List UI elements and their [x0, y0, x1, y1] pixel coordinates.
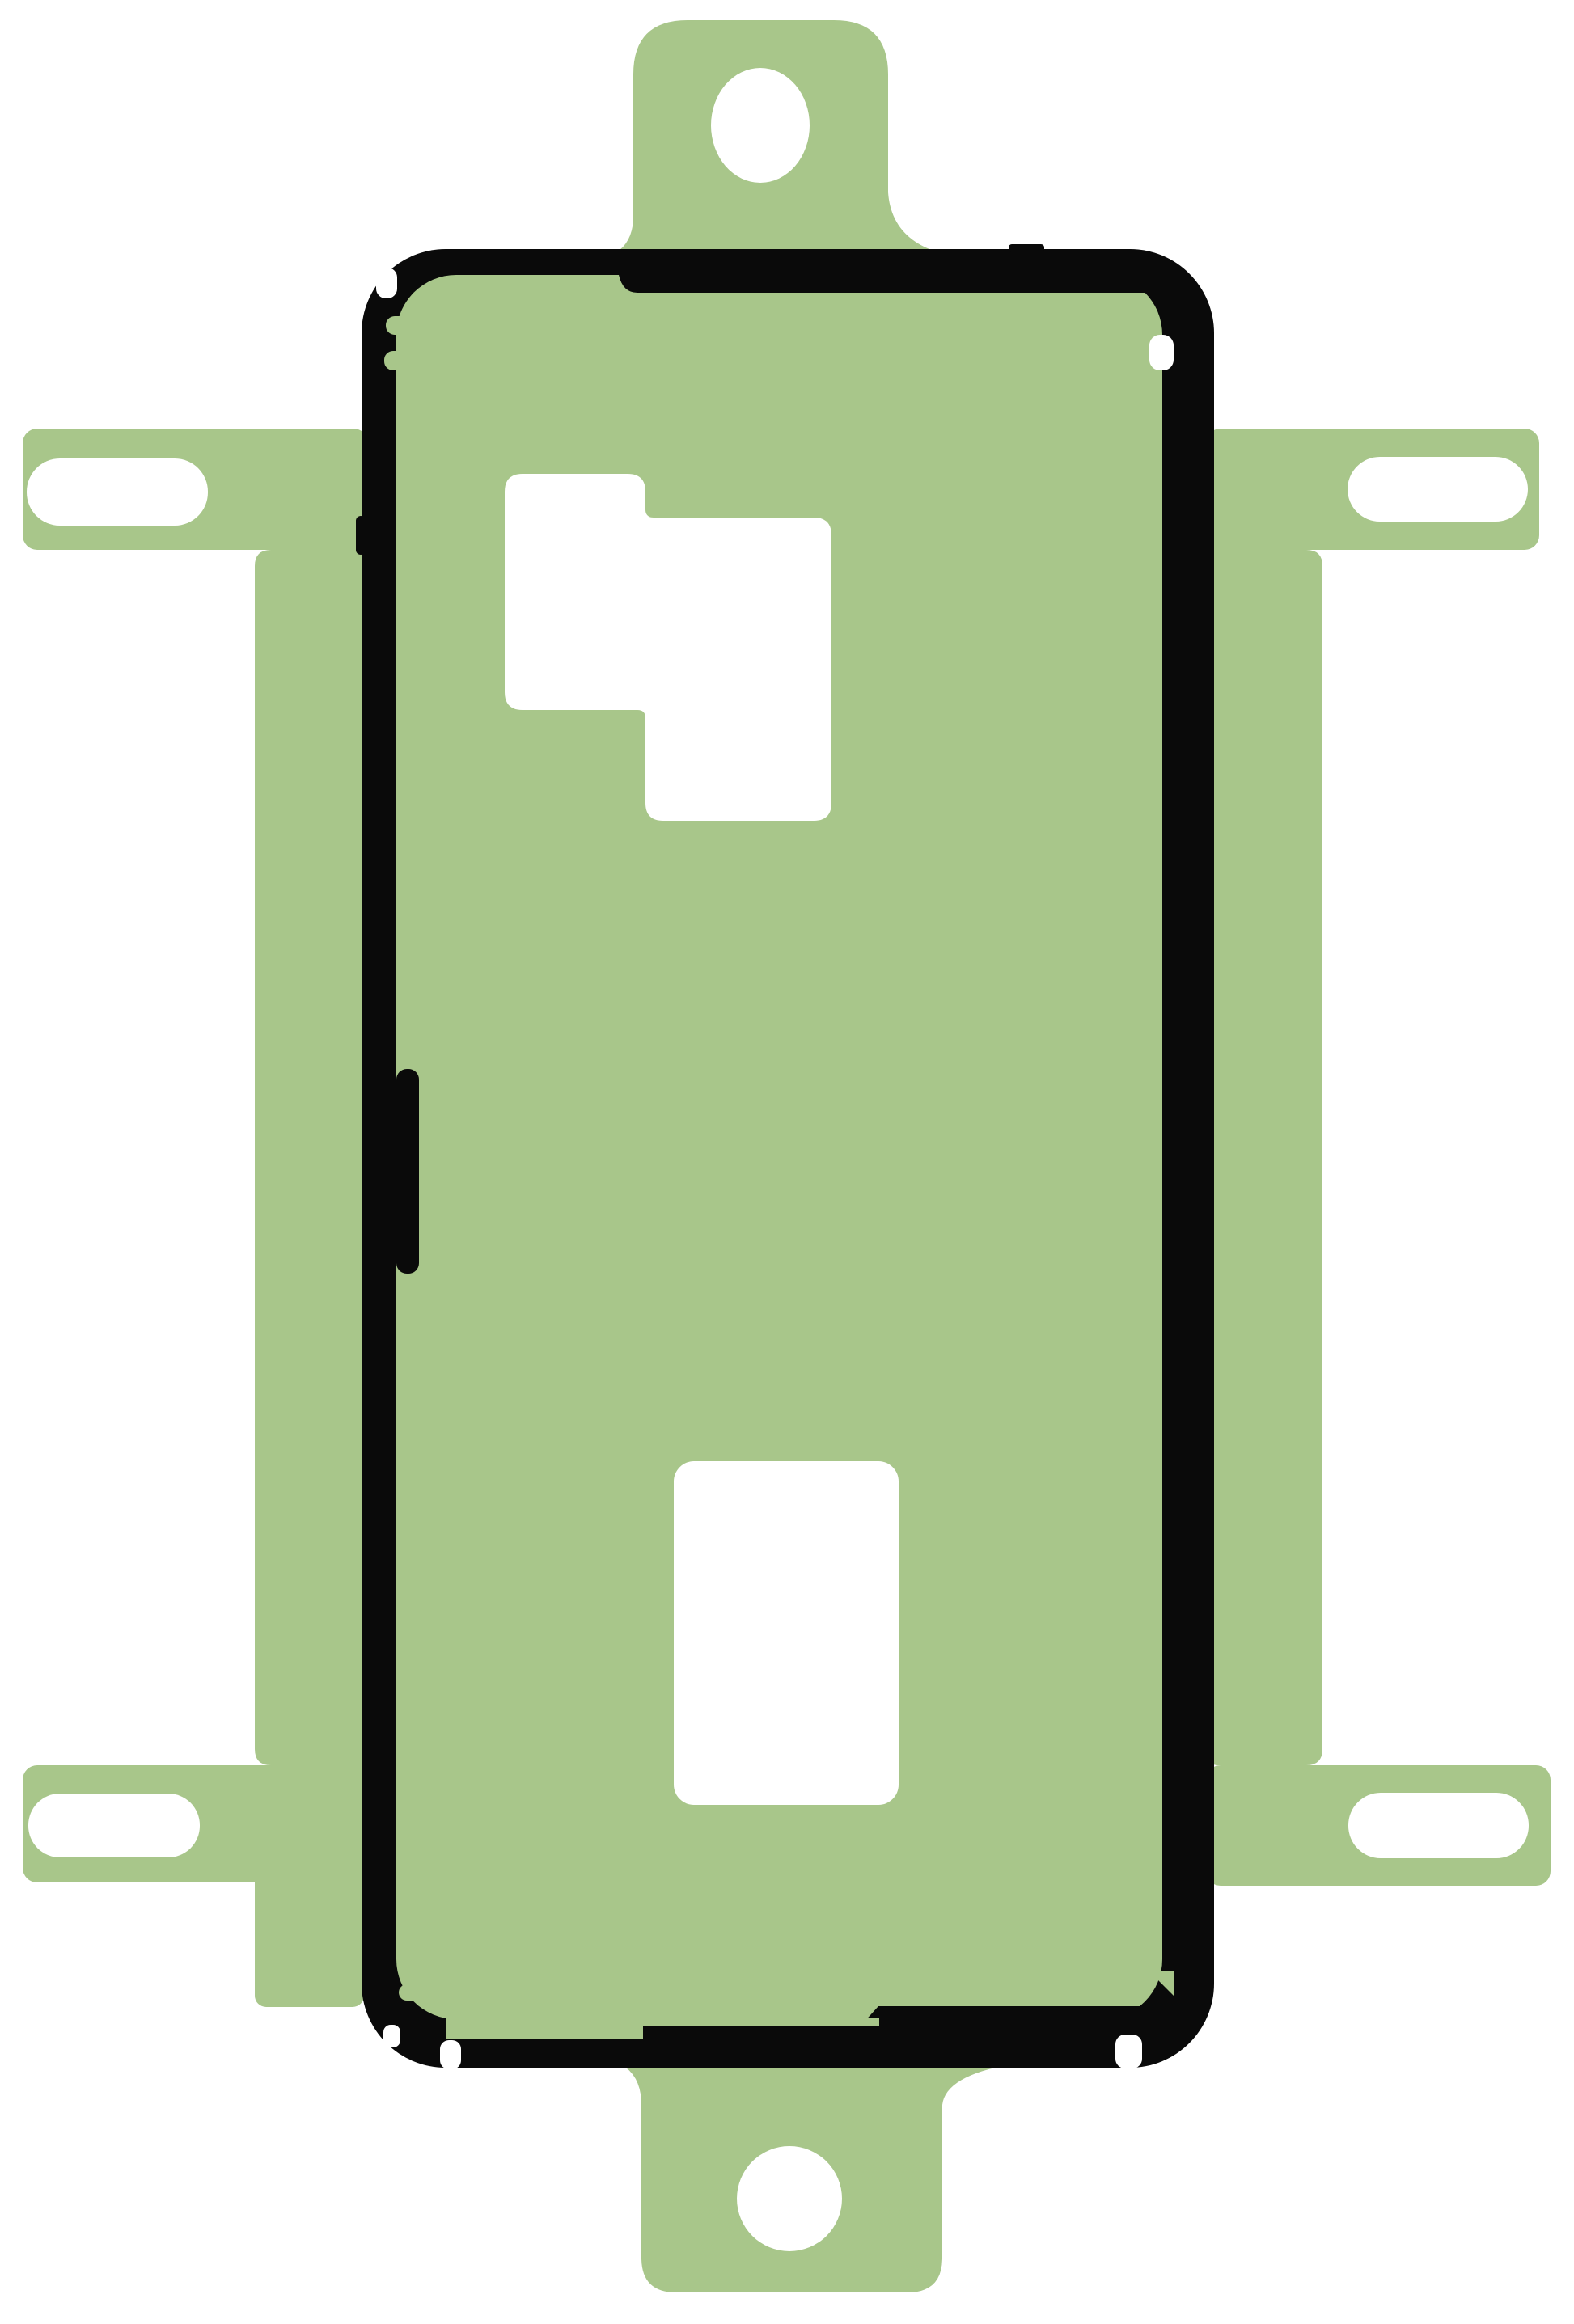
top-tab-hole: [711, 68, 810, 183]
outer-notch-top-left: [376, 268, 397, 298]
gasket-left-outer-bump: [356, 516, 366, 555]
slit-bottom-band-right: [1115, 2035, 1142, 2068]
bottom-tab-hole: [737, 2146, 842, 2251]
alignment-slot-bottom-right: [1348, 1793, 1529, 1858]
gasket-bottom-thick-segment: [862, 2006, 1162, 2024]
gasket-bottom-thin-cover-mid: [643, 2018, 879, 2026]
notch-top-left-2: [384, 351, 417, 370]
notch-top-left-1: [386, 316, 419, 335]
alignment-slot-top-left: [27, 458, 208, 526]
slit-bottom-band-left: [440, 2040, 461, 2069]
adhesive-sheet-image: [0, 0, 1574, 2324]
gasket-bottom-thin-cover-left: [446, 2018, 643, 2039]
alignment-slot-top-right: [1348, 457, 1528, 522]
outer-notch-bottom-left: [383, 2025, 400, 2047]
gasket-top-thick-segment: [619, 275, 1162, 293]
gasket-top-edge-tick: [1009, 244, 1044, 252]
right-vertical-strip: [1206, 485, 1322, 1765]
outer-notch-top-right: [1149, 335, 1174, 370]
gasket-left-inner-bump: [396, 1069, 419, 1274]
lower-rectangular-cutout: [674, 1461, 899, 1805]
product-image-stage: [0, 0, 1574, 2324]
left-vertical-strip: [255, 485, 364, 2007]
notch-bottom-left: [399, 1984, 429, 2001]
alignment-slot-bottom-left: [28, 1794, 200, 1857]
